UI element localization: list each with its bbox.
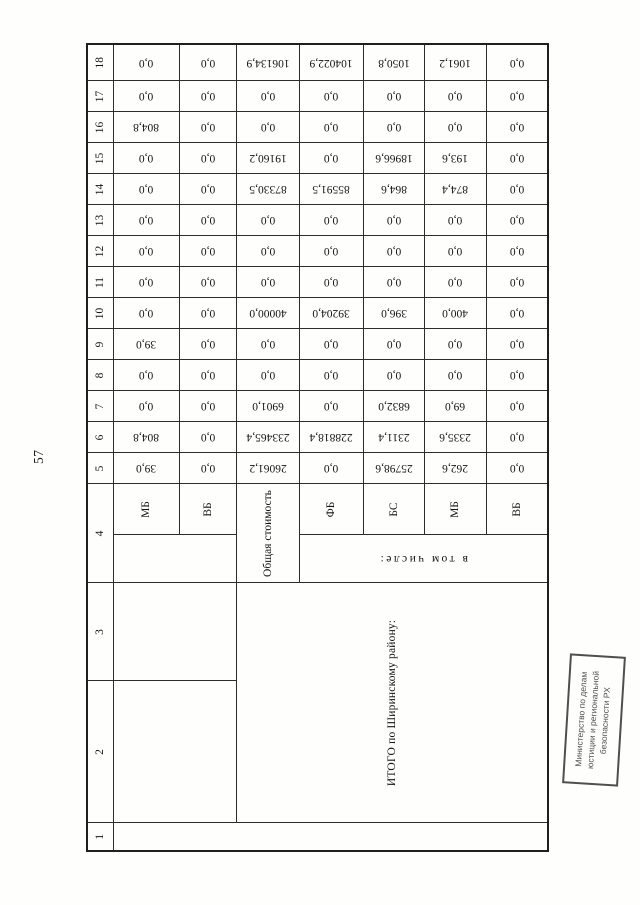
district-total-label: ИТОГО по Ширинскому району: xyxy=(236,583,548,823)
column-number-cell: 8 xyxy=(87,360,113,391)
value-cell: 0,0 xyxy=(363,360,424,391)
column-number-cell: 1 xyxy=(87,823,113,851)
value-cell-text: 25798,6 xyxy=(375,463,412,475)
value-cell-text: 0,0 xyxy=(260,215,274,227)
value-cell-text: 0,0 xyxy=(448,122,462,134)
value-cell: 400,0 xyxy=(424,298,486,329)
value-cell-text: 0,0 xyxy=(510,463,524,475)
value-cell-text: 0,0 xyxy=(200,339,214,351)
value-cell-text: 0,0 xyxy=(324,91,338,103)
value-cell: 104022,9 xyxy=(299,44,363,81)
value-cell: 0,0 xyxy=(486,329,548,360)
value-cell-text: 18966,6 xyxy=(375,153,412,165)
table-row: ИТОГО по Ширинскому району:Общая стоимос… xyxy=(236,44,299,851)
funding-source-label: ВБ xyxy=(179,484,236,535)
value-cell: 0,0 xyxy=(179,143,236,174)
value-cell: 39,0 xyxy=(113,329,179,360)
value-cell-text: 0,0 xyxy=(510,401,524,413)
column-number-cell: 13 xyxy=(87,205,113,236)
value-cell: 0,0 xyxy=(236,360,299,391)
value-cell-text: 0,0 xyxy=(324,246,338,258)
value-cell: 0,0 xyxy=(113,360,179,391)
value-cell-text: 0,0 xyxy=(448,246,462,258)
value-cell: 1061,2 xyxy=(424,44,486,81)
value-cell-text: 87330,5 xyxy=(249,184,286,196)
value-cell: 262,6 xyxy=(424,453,486,484)
value-cell-text: 193,6 xyxy=(442,153,468,165)
value-cell-text: 864,6 xyxy=(381,184,407,196)
value-cell-text: 0,0 xyxy=(324,122,338,134)
value-cell: 39204,0 xyxy=(299,298,363,329)
value-cell: 233465,4 xyxy=(236,422,299,453)
funding-source-label: МБ xyxy=(113,484,179,535)
value-cell: 1050,8 xyxy=(363,44,424,81)
column-number-cell: 3 xyxy=(87,583,113,681)
value-cell: 2311,4 xyxy=(363,422,424,453)
col3-empty-cell xyxy=(113,583,236,681)
value-cell: 0,0 xyxy=(299,329,363,360)
value-cell: 0,0 xyxy=(179,44,236,81)
value-cell-text: 0,0 xyxy=(200,277,214,289)
value-cell: 0,0 xyxy=(486,143,548,174)
column-number-cell: 16 xyxy=(87,112,113,143)
value-cell-text: 0,0 xyxy=(260,91,274,103)
value-cell: 804,8 xyxy=(113,112,179,143)
value-cell: 0,0 xyxy=(113,391,179,422)
value-cell: 0,0 xyxy=(363,81,424,112)
total-cost-label: Общая стоимость xyxy=(236,484,299,583)
value-cell-text: 0,0 xyxy=(139,277,153,289)
value-cell: 0,0 xyxy=(486,174,548,205)
value-cell-text: 0,0 xyxy=(139,91,153,103)
value-cell-text: 0,0 xyxy=(510,153,524,165)
value-cell-text: 0,0 xyxy=(139,308,153,320)
value-cell: 0,0 xyxy=(113,298,179,329)
value-cell-text: 0,0 xyxy=(510,370,524,382)
value-cell: 0,0 xyxy=(179,236,236,267)
value-cell-text: 0,0 xyxy=(260,122,274,134)
value-cell: 0,0 xyxy=(299,391,363,422)
value-cell-text: 104022,9 xyxy=(309,57,352,69)
value-cell-text: 0,0 xyxy=(386,277,400,289)
value-cell-text: 0,0 xyxy=(139,370,153,382)
value-cell-text: 85591,5 xyxy=(312,184,349,196)
value-cell: 0,0 xyxy=(179,112,236,143)
value-cell-text: 0,0 xyxy=(260,370,274,382)
value-cell-text: 0,0 xyxy=(200,184,214,196)
value-cell-text: 400,0 xyxy=(442,308,468,320)
value-cell-text: 233465,4 xyxy=(246,432,289,444)
value-cell-text: 0,0 xyxy=(200,370,214,382)
value-cell-text: 0,0 xyxy=(200,246,214,258)
column-number-cell: 9 xyxy=(87,329,113,360)
value-cell-text: 0,0 xyxy=(448,215,462,227)
value-cell: 0,0 xyxy=(299,453,363,484)
value-cell-text: 0,0 xyxy=(260,339,274,351)
col2-empty-cell xyxy=(113,681,236,823)
value-cell-text: 0,0 xyxy=(200,153,214,165)
value-cell: 0,0 xyxy=(486,453,548,484)
ministry-stamp: Министерство по делам юстиции и регионал… xyxy=(562,653,626,786)
value-cell: 0,0 xyxy=(424,329,486,360)
value-cell-text: 0,0 xyxy=(386,339,400,351)
value-cell-text: 0,0 xyxy=(324,215,338,227)
value-cell: 0,0 xyxy=(113,236,179,267)
value-cell: 0,0 xyxy=(486,267,548,298)
value-cell-text: 0,0 xyxy=(200,57,214,69)
value-cell-text: 0,0 xyxy=(510,122,524,134)
value-cell: 0,0 xyxy=(363,267,424,298)
value-cell: 87330,5 xyxy=(236,174,299,205)
value-cell: 2335,6 xyxy=(424,422,486,453)
column-number-cell: 2 xyxy=(87,681,113,823)
value-cell: 0,0 xyxy=(236,236,299,267)
value-cell: 0,0 xyxy=(486,236,548,267)
value-cell-text: 0,0 xyxy=(200,463,214,475)
value-cell-text: 0,0 xyxy=(200,308,214,320)
column-number-cell: 5 xyxy=(87,453,113,484)
value-cell: 0,0 xyxy=(113,143,179,174)
value-cell: 0,0 xyxy=(486,44,548,81)
value-cell-text: 0,0 xyxy=(200,432,214,444)
value-cell: 69,0 xyxy=(424,391,486,422)
funding-source-label: ВБ xyxy=(486,484,548,535)
column-number-cell: 10 xyxy=(87,298,113,329)
table-row: МБ39,0804,80,00,039,00,00,00,00,00,00,08… xyxy=(113,44,179,851)
value-cell: 0,0 xyxy=(486,422,548,453)
value-cell: 0,0 xyxy=(113,44,179,81)
value-cell-text: 0,0 xyxy=(200,215,214,227)
value-cell-text: 228818,4 xyxy=(309,432,352,444)
value-cell: 0,0 xyxy=(179,205,236,236)
value-cell: 0,0 xyxy=(486,112,548,143)
value-cell-text: 39204,0 xyxy=(312,308,349,320)
value-cell-text: 39,0 xyxy=(136,339,156,351)
value-cell: 0,0 xyxy=(299,112,363,143)
value-cell: 85591,5 xyxy=(299,174,363,205)
value-cell: 228818,4 xyxy=(299,422,363,453)
value-cell: 0,0 xyxy=(113,81,179,112)
value-cell: 0,0 xyxy=(363,329,424,360)
value-cell-text: 0,0 xyxy=(448,91,462,103)
value-cell-text: 262,6 xyxy=(442,463,468,475)
value-cell-text: 2335,6 xyxy=(439,432,471,444)
value-cell: 804,8 xyxy=(113,422,179,453)
value-cell-text: 6832,0 xyxy=(378,401,410,413)
value-cell-text: 0,0 xyxy=(139,401,153,413)
value-cell: 0,0 xyxy=(424,81,486,112)
value-cell-text: 0,0 xyxy=(139,246,153,258)
value-cell: 106134,9 xyxy=(236,44,299,81)
value-cell: 0,0 xyxy=(179,298,236,329)
value-cell-text: 0,0 xyxy=(139,57,153,69)
column-number-cell: 12 xyxy=(87,236,113,267)
value-cell: 0,0 xyxy=(299,205,363,236)
value-cell-text: 0,0 xyxy=(260,277,274,289)
column-number-cell: 7 xyxy=(87,391,113,422)
value-cell: 18966,6 xyxy=(363,143,424,174)
value-cell: 40000,0 xyxy=(236,298,299,329)
funding-source-label: БС xyxy=(363,484,424,535)
value-cell: 25798,6 xyxy=(363,453,424,484)
value-cell-text: 0,0 xyxy=(139,184,153,196)
value-cell-text: 0,0 xyxy=(448,277,462,289)
value-cell-text: 396,0 xyxy=(381,308,407,320)
funding-source-label: ФБ xyxy=(299,484,363,535)
page-number: 57 xyxy=(31,450,47,465)
including-label: в том числе: xyxy=(299,535,548,583)
value-cell: 0,0 xyxy=(299,143,363,174)
value-cell-text: 0,0 xyxy=(448,370,462,382)
value-cell-text: 0,0 xyxy=(260,246,274,258)
value-cell-text: 0,0 xyxy=(386,215,400,227)
value-cell-text: 0,0 xyxy=(510,432,524,444)
value-cell: 0,0 xyxy=(486,298,548,329)
value-cell-text: 0,0 xyxy=(200,401,214,413)
value-cell: 864,6 xyxy=(363,174,424,205)
header-row: 123456789101112131415161718 xyxy=(87,44,113,851)
funding-source-label: МБ xyxy=(424,484,486,535)
value-cell-text: 0,0 xyxy=(139,215,153,227)
value-cell: 0,0 xyxy=(179,391,236,422)
value-cell: 0,0 xyxy=(179,360,236,391)
value-cell-text: 69,0 xyxy=(445,401,465,413)
value-cell-text: 106134,9 xyxy=(246,57,289,69)
value-cell-text: 804,8 xyxy=(133,122,159,134)
screenshot-root: { "page": { "number": "57" }, "stamp": {… xyxy=(0,0,640,905)
value-cell-text: 0,0 xyxy=(510,215,524,227)
scanned-sheet: 57 123456789101112131415161718МБ39,0804,… xyxy=(0,0,640,905)
value-cell: 0,0 xyxy=(299,236,363,267)
value-cell: 0,0 xyxy=(236,267,299,298)
value-cell-text: 0,0 xyxy=(510,277,524,289)
value-cell: 26061,2 xyxy=(236,453,299,484)
value-cell: 0,0 xyxy=(424,236,486,267)
col1-empty-cell xyxy=(113,823,548,851)
value-cell: 6901,0 xyxy=(236,391,299,422)
value-cell: 0,0 xyxy=(113,205,179,236)
value-cell-text: 0,0 xyxy=(324,153,338,165)
value-cell: 39,0 xyxy=(113,453,179,484)
value-cell: 0,0 xyxy=(236,205,299,236)
value-cell: 0,0 xyxy=(179,329,236,360)
value-cell: 0,0 xyxy=(486,81,548,112)
value-cell-text: 0,0 xyxy=(324,370,338,382)
value-cell-text: 0,0 xyxy=(200,91,214,103)
column-number-cell: 14 xyxy=(87,174,113,205)
value-cell-text: 1050,8 xyxy=(378,57,410,69)
value-cell: 0,0 xyxy=(486,360,548,391)
value-cell-text: 19160,2 xyxy=(249,153,286,165)
value-cell-text: 804,8 xyxy=(133,432,159,444)
column-number-cell: 17 xyxy=(87,81,113,112)
value-cell: 0,0 xyxy=(363,236,424,267)
including-empty-cell xyxy=(113,535,236,583)
including-label-text: в том числе: xyxy=(378,553,468,565)
value-cell-text: 39,0 xyxy=(136,463,156,475)
value-cell: 0,0 xyxy=(424,267,486,298)
value-cell: 19160,2 xyxy=(236,143,299,174)
value-cell-text: 0,0 xyxy=(324,463,338,475)
value-cell-text: 0,0 xyxy=(386,370,400,382)
value-cell: 0,0 xyxy=(486,205,548,236)
value-cell-text: 874,4 xyxy=(442,184,468,196)
column-number-cell: 11 xyxy=(87,267,113,298)
column-number-cell: 18 xyxy=(87,44,113,81)
value-cell: 0,0 xyxy=(424,112,486,143)
value-cell-text: 0,0 xyxy=(510,57,524,69)
value-cell: 0,0 xyxy=(113,174,179,205)
value-cell-text: 2311,4 xyxy=(378,432,409,444)
value-cell-text: 0,0 xyxy=(510,91,524,103)
column-number-cell: 6 xyxy=(87,422,113,453)
value-cell-text: 0,0 xyxy=(324,277,338,289)
value-cell: 0,0 xyxy=(179,267,236,298)
finance-table: 123456789101112131415161718МБ39,0804,80,… xyxy=(86,43,549,852)
value-cell-text: 0,0 xyxy=(324,339,338,351)
value-cell-text: 0,0 xyxy=(139,153,153,165)
value-cell: 0,0 xyxy=(424,205,486,236)
value-cell-text: 0,0 xyxy=(510,246,524,258)
value-cell: 0,0 xyxy=(236,329,299,360)
value-cell-text: 1061,2 xyxy=(439,57,471,69)
value-cell-text: 0,0 xyxy=(510,339,524,351)
value-cell: 0,0 xyxy=(363,112,424,143)
value-cell: 0,0 xyxy=(179,174,236,205)
value-cell-text: 26061,2 xyxy=(249,463,286,475)
value-cell: 0,0 xyxy=(299,360,363,391)
value-cell-text: 40000,0 xyxy=(249,308,286,320)
value-cell: 0,0 xyxy=(363,205,424,236)
value-cell: 0,0 xyxy=(236,112,299,143)
value-cell: 0,0 xyxy=(299,81,363,112)
value-cell: 874,4 xyxy=(424,174,486,205)
value-cell: 0,0 xyxy=(179,453,236,484)
value-cell: 6832,0 xyxy=(363,391,424,422)
value-cell-text: 0,0 xyxy=(386,122,400,134)
column-number-cell: 15 xyxy=(87,143,113,174)
value-cell: 0,0 xyxy=(299,267,363,298)
value-cell: 193,6 xyxy=(424,143,486,174)
value-cell-text: 0,0 xyxy=(386,91,400,103)
value-cell-text: 0,0 xyxy=(510,308,524,320)
value-cell-text: 0,0 xyxy=(448,339,462,351)
value-cell-text: 0,0 xyxy=(324,401,338,413)
value-cell-text: 6901,0 xyxy=(252,401,284,413)
value-cell-text: 0,0 xyxy=(386,246,400,258)
column-number-cell: 4 xyxy=(87,484,113,583)
value-cell: 0,0 xyxy=(179,422,236,453)
value-cell: 0,0 xyxy=(424,360,486,391)
value-cell: 0,0 xyxy=(113,267,179,298)
value-cell-text: 0,0 xyxy=(510,184,524,196)
value-cell: 396,0 xyxy=(363,298,424,329)
value-cell: 0,0 xyxy=(179,81,236,112)
value-cell-text: 0,0 xyxy=(200,122,214,134)
value-cell: 0,0 xyxy=(236,81,299,112)
value-cell: 0,0 xyxy=(486,391,548,422)
